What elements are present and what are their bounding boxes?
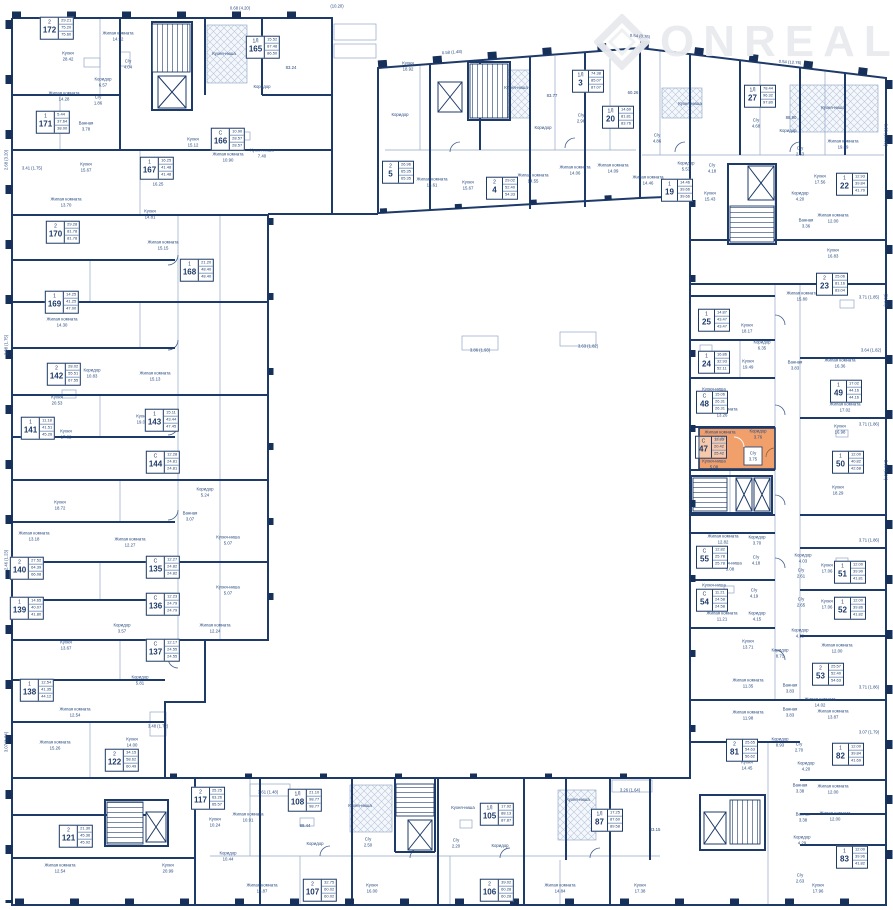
room-label: Жилая комната12.54 [59,706,90,717]
dim-label: 0.68 (4.20) [230,6,250,11]
room-label: Коридор8.93 [772,736,789,747]
unit-box-170[interactable]: 217029.2881.7881.78 [46,221,80,244]
room-label: Кухня17.38 [634,882,646,893]
room-label: Коридор [535,125,552,131]
room-label: Коридор8.71 [772,647,789,658]
floorplan-page: 217229.2175.2075.601Л16515.5287.4886.501… [0,0,893,910]
room-label: Коридор10.44 [220,850,237,861]
unit-box-137[interactable]: С13712.1724.5524.55 [146,639,180,662]
room-label: Кухня15.12 [187,136,199,147]
room-label: Кухня20.99 [162,862,174,873]
unit-box-107[interactable]: 210732.7560.0260.02 [303,879,337,902]
room-label: Кухня20.53 [51,394,63,405]
unit-box-136[interactable]: С13612.2324.7924.79 [146,593,180,616]
room-label: Кухня-ниша [451,805,475,811]
room-label: Жилая комната12.00 [817,783,848,794]
unit-box-168[interactable]: 116821.2048.4048.40 [180,259,214,282]
unit-box-117[interactable]: 211725.2563.2665.57 [191,787,225,810]
dim-label: 2.46 (1.23) [4,550,9,570]
dim-label: 2.88 (1.94) [884,460,889,480]
dim-label: (21.16) [884,293,889,306]
room-label: Жилая комната15.26 [39,739,70,750]
room-label: С/у4.68 [752,117,760,128]
unit-box-167[interactable]: 116716.2541.4841.48 [140,157,174,180]
room-label: Коридор5.53 [678,160,695,171]
elevator-icon [704,812,726,844]
dim-label: 3.48 (1.72) [148,724,168,729]
room-label: Кухня17.96 [812,882,824,893]
room-label: С/у2.50 [364,836,372,847]
room-label: Кухня-ниша [678,101,702,107]
room-label: Жилая комната14.46 [632,174,663,185]
room-label: 83.77 [547,93,558,99]
room-label: Ванная3.07 [183,510,198,521]
unit-box-83[interactable]: 18312.0039.9641.82 [836,846,868,869]
room-label: С/у3.75 [749,450,757,461]
room-label: 88.44 [300,823,311,829]
room-label: 60.26 [628,90,639,96]
elevator-icon [736,478,752,511]
room-label: Жилая комната12.82 [707,533,738,544]
dim-label: 2.68 (3.20) [4,150,9,170]
unit-box-52[interactable]: 15212.0039.8641.82 [834,597,866,620]
room-label: Коридор6.35 [754,339,771,350]
room-label: Кухня13.67 [60,639,72,650]
room-label: С/у2.65 [797,596,805,607]
room-label: Жилая комната12.00 [821,642,852,653]
room-label: Кухня17.62 [60,428,72,439]
room-label: Кухня15.67 [80,161,92,172]
room-label: Коридор5.24 [197,486,214,497]
room-label: Кухня13.71 [742,638,754,649]
room-label: Коридор [492,843,509,849]
unit-box-19[interactable]: 11914.4639.6639.66 [661,179,693,202]
room-label: 83.15 [650,827,661,833]
room-label: Жилая комната19.69 [827,138,858,149]
room-label: Коридор4.20 [798,760,815,771]
unit-box-27[interactable]: 1Л2778.4496.3297.80 [744,85,776,108]
room-label: Ванная3.83 [783,682,798,693]
room-label: Жилая комната10.90 [212,151,243,162]
elevator-icon [158,76,186,108]
room-label: Жилая комната14.09 [597,162,628,173]
room-label: Кухня18.72 [54,499,66,510]
room-label: С/у2.70 [795,741,803,752]
elevator-icon [146,812,166,842]
room-label: Жилая комната10.91 [232,811,263,822]
unit-box-54[interactable]: С5411.2124.5824.58 [696,589,728,612]
dim-label: 3.63 (1.82) [578,344,598,349]
room-label: Кухня-ниша7.40 [250,147,274,158]
unit-box-25[interactable]: 12514.8743.4743.47 [698,309,730,332]
stairs-bottom-mid [396,784,434,816]
room-label: Кухня-ниша5.08 [702,458,726,469]
unit-box-47[interactable]: С4712.8320.4225.42 [695,436,727,459]
unit-box-24[interactable]: 12416.8632.9352.11 [698,351,730,374]
room-label: Кухня18.29 [832,484,844,495]
room-label: Жилая комната13.87 [817,708,848,719]
unit-box-171[interactable]: 11715.4437.6438.00 [36,111,70,134]
dim-label: 3.71 (1.86) [859,422,879,427]
room-label: Коридор4.20 [792,190,809,201]
room-label: Коридор3.57 [114,622,131,633]
dim-label: 3.08 (1.75) [4,335,9,355]
unit-box-169[interactable]: 116914.2541.2547.00 [45,291,79,314]
dim-label: 3.71 (1.86) [859,538,879,543]
dim-label: 0.88 (10.35) [884,124,889,147]
unit-box-140[interactable]: 214027.5264.3966.08 [10,557,44,580]
room-label: Жилая комната14.30 [46,316,77,327]
unit-box-23[interactable]: 22325.0681.1683.04 [816,273,848,296]
unit-box-4[interactable]: 2429.0252.4054.33 [486,177,518,200]
room-label: Жилая комната15.13 [139,370,170,381]
room-label: Жилая комната13.18 [18,530,49,541]
room-label: Кухня17.06 [821,562,833,573]
room-label: Ванная3.83 [783,706,798,717]
room-label: Жилая комната12.00 [817,212,848,223]
unit-box-135[interactable]: С13512.2724.8224.82 [146,556,180,579]
elevator-icon [754,478,770,511]
unit-box-106[interactable]: 210639.0260.2860.28 [480,879,514,902]
room-label: Кухня-ниша5.07 [216,584,240,595]
room-label: Кухня18.92 [402,60,414,71]
dim-label: 3.61 (1.48) [258,790,278,795]
unit-box-3[interactable]: 1Л374.3885.0787.07 [572,70,604,93]
unit-box-5[interactable]: 2526.9665.3565.35 [382,161,414,184]
unit-box-50[interactable]: 15012.0040.8242.68 [832,451,864,474]
dim-label: 3.64 (1.82) [861,348,881,353]
room-label: Кухня14.81 [144,208,156,219]
room-label: Ванная3.36 [799,217,814,228]
floorplan-svg [0,0,893,910]
room-label: Жилая комната11.35 [732,677,763,688]
room-label: Жилая комната13.61 [416,176,447,187]
room-label: Кухня-ниша [348,803,372,809]
room-label: Ванная3.38 [796,811,811,822]
unit-box-20[interactable]: 1Л2014.6081.8183.76 [602,106,634,129]
room-label: С/у4.86 [653,132,661,143]
unit-box-165[interactable]: 1Л16515.5287.4886.50 [246,36,280,59]
room-label: Коридор4.15 [749,610,766,621]
room-label: С/у2.63 [796,145,804,156]
room-label: Кухня28.42 [62,50,74,61]
room-label: С/у2.96 [577,112,585,123]
room-label: Жилая комната14.02 [804,696,835,707]
room-label: Кухня18.17 [741,322,753,333]
unit-box-139[interactable]: 113914.6540.0741.80 [10,597,44,620]
room-label: Жилая комната14.84 [544,882,575,893]
room-label: Жилая комната13.87 [246,882,277,893]
room-label: Ванная3.78 [79,120,94,131]
unit-box-48[interactable]: С4815.0626.3126.31 [696,391,728,414]
unit-box-22[interactable]: 12212.9339.8441.70 [836,173,868,196]
room-label: Жилая комната17.02 [829,401,860,412]
room-label: С/у2.63 [796,872,804,883]
room-label: Ванная3.83 [788,359,803,370]
room-label: С/у4.18 [708,162,716,173]
room-label: С/у1.86 [94,94,102,105]
dim-label: 3.71 (1.85) [859,295,879,300]
dim-label: 3.86 (1.93) [470,348,490,353]
unit-box-141[interactable]: 114111.1841.5145.26 [21,417,55,440]
room-label: Жилая комната14.06 [559,164,590,175]
room-label: Кухня-ниша [212,51,236,57]
unit-box-138[interactable]: 113812.5441.3544.12 [20,679,54,702]
stairs-bottom-left [107,802,143,844]
stairs-top-left [152,24,190,72]
room-label: Кухня-ниша [821,105,845,111]
dim-label: 3.07 (1.04) [4,732,9,752]
room-label: Коридор4.03 [795,552,812,563]
room-label: Коридор [254,84,271,90]
room-label: Кухня15.67 [462,179,474,190]
room-label: Кухня17.56 [814,173,826,184]
room-label: 83.24 [286,65,297,71]
room-label: Коридор [392,112,409,118]
room-label: Жилая комната15.15 [147,239,178,250]
room-label: Кухня-ниша [504,85,528,91]
stairs-right-top [730,206,774,242]
room-label: С/у4.19 [750,587,758,598]
room-label: Жилая комната12.54 [44,862,75,873]
unit-box-121[interactable]: 212121.3045.3645.92 [59,825,93,848]
stairs-right-mid [693,478,727,511]
dim-label: 3.41 (1.75) [22,166,42,171]
room-label: Жилая комната16.36 [824,357,855,368]
room-label: Жилая комната12.27 [114,536,145,547]
room-label: Жилая комната11.21 [706,610,737,621]
room-label: Жилая комната15.80 [786,290,817,301]
stairs-top-mid [470,64,508,118]
room-label: Жилая комната12.00 [819,810,850,821]
unit-box-172[interactable]: 217229.2175.2075.60 [40,17,74,40]
room-label: 88.90 [786,115,797,121]
room-label: Кухня-ниша [566,797,590,803]
unit-box-142[interactable]: 214228.0255.5167.55 [47,363,81,386]
room-label: С/у2.20 [452,837,460,848]
room-label: Жилая комната11.98 [732,709,763,720]
dim-label: 3.71 (1.86) [859,685,879,690]
room-label: Коридор10.83 [84,367,101,378]
unit-box-143[interactable]: 114315.1143.4447.45 [145,409,179,432]
room-label: Жилая комната14.55 [517,172,548,183]
room-label: Жилая комната12.24 [199,622,230,633]
room-label: С/у4.04 [124,58,132,69]
room-label: Кухня17.06 [821,598,833,609]
room-label: Коридор3.76 [750,428,767,439]
room-label: Коридор [307,841,324,847]
room-label: Коридор4.39 [792,627,809,638]
unit-box-82[interactable]: 18212.0039.8441.69 [832,743,864,766]
elevator-icon [438,82,462,112]
room-label: Жилая комната13.70 [50,196,81,207]
unit-box-55[interactable]: С5512.8225.7825.78 [696,546,728,569]
room-label: С/у4.18 [752,554,760,565]
dim-label: 3.07 (1.79) [859,730,879,735]
room-label: Коридор [780,128,797,134]
dim-label: (10.20) [330,4,343,9]
room-label: С/у2.61 [797,567,805,578]
room-label: Ванная3.38 [793,782,808,793]
unit-box-81[interactable]: 28125.6554.6356.62 [726,739,758,762]
unit-box-51[interactable]: 15112.0039.9041.81 [834,561,866,584]
room-label: Кухня16.00 [366,882,378,893]
elevator-icon [408,820,432,850]
room-label: Коридор5.81 [132,674,149,685]
room-label: Кухня16.83 [827,247,839,258]
room-label: Кухня15.43 [704,190,716,201]
unit-box-49[interactable]: 14917.0244.1644.16 [830,380,862,403]
unit-box-166[interactable]: С16610.9028.5728.57 [211,128,245,151]
elevator-icon [748,166,774,200]
room-label: Коридор6.57 [95,76,112,87]
unit-box-87[interactable]: 1Л8717.2587.6089.58 [591,809,623,832]
room-label: Коридор4.29 [794,834,811,845]
unit-box-105[interactable]: 1Л10517.9288.1387.87 [480,803,514,826]
room-label: Кухня14.00 [126,736,138,747]
room-label: Кухня10.24 [209,816,221,827]
room-label: Кухня19.49 [742,358,754,369]
dim-label: 3.26 (1.64) [620,788,640,793]
room-label: Кухня-ниша5.07 [216,534,240,545]
room-label: Коридор3.70 [749,534,766,545]
unit-box-122[interactable]: 212234.1558.6260.49 [105,749,139,772]
unit-box-144[interactable]: С14412.2824.8124.81 [146,451,180,474]
room-label: Кухня16.98 [834,423,846,434]
stairs-bottom-right [730,800,760,844]
room-label: Жилая комната14.92 [102,30,133,41]
unit-box-108[interactable]: 1Л10821.1098.7798.77 [288,789,322,812]
room-label: Жилая комната14.28 [48,90,79,101]
unit-box-53[interactable]: 25325.5752.4054.63 [812,663,844,686]
